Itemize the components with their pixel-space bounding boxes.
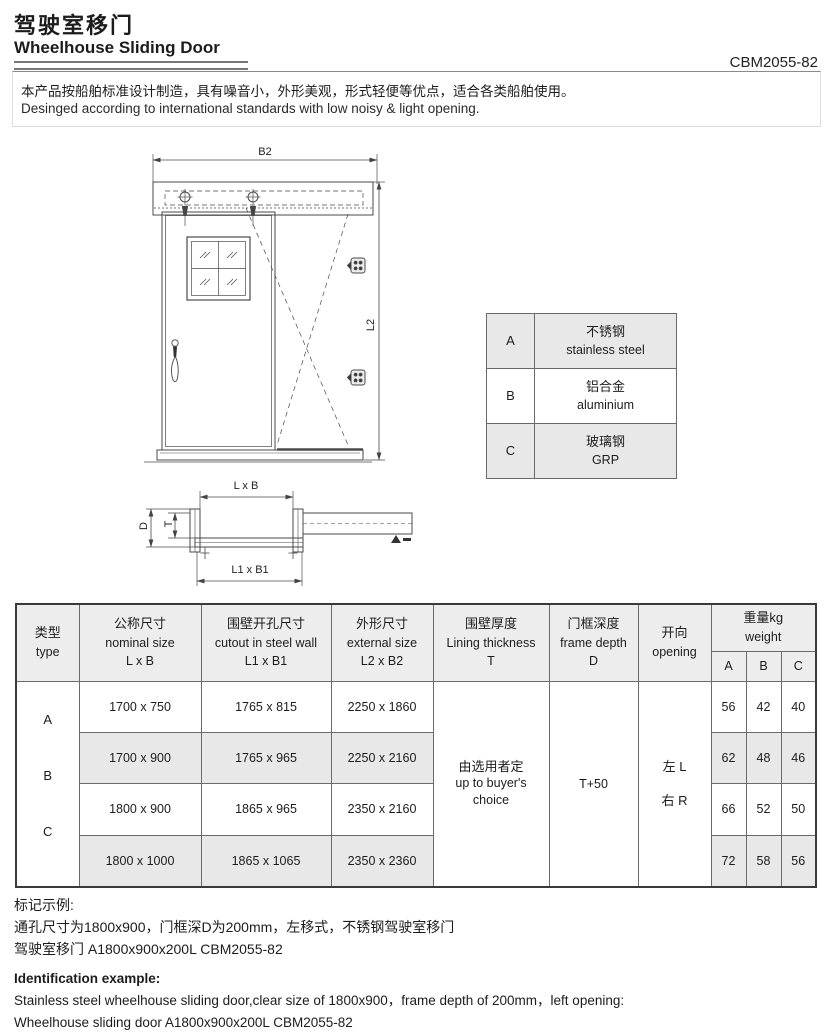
weight-c-cell: 46 <box>781 732 816 783</box>
technical-drawing: B2 L2 L x B D T L1 x B1 <box>120 140 440 605</box>
standard-code: CBM2055-82 <box>730 54 818 71</box>
weight-a-cell: 56 <box>711 681 746 732</box>
description-en: Desinged according to international stan… <box>21 101 480 116</box>
external-size-cell: 2350 x 2160 <box>331 784 433 835</box>
front-view <box>144 154 385 462</box>
opening-cell: 左 L 右 R <box>638 681 711 887</box>
material-key: C <box>487 424 535 479</box>
weight-a-cell: 62 <box>711 732 746 783</box>
weight-b-cell: 48 <box>746 732 781 783</box>
description-box: 本产品按船舶标准设计制造，具有噪音小，外形美观，形式轻便等优点，适合各类船舶使用… <box>12 71 821 127</box>
col-header-frame-depth: 门框深度 frame depth D <box>549 604 638 681</box>
material-row: A 不锈钢 stainless steel <box>487 314 677 369</box>
material-table: A 不锈钢 stainless steel B 铝合金 aluminium C … <box>486 313 677 479</box>
weight-c-cell: 40 <box>781 681 816 732</box>
external-size-cell: 2350 x 2360 <box>331 835 433 886</box>
lining-thickness-cell: 由选用者定 up to buyer's choice <box>433 681 549 887</box>
cutout-size-cell: 1865 x 1065 <box>201 835 331 886</box>
weight-subcol-a: A <box>711 651 746 681</box>
material-name-en: GRP <box>535 451 676 469</box>
description-zh: 本产品按船舶标准设计制造，具有噪音小，外形美观，形式轻便等优点，适合各类船舶使用… <box>21 80 575 100</box>
col-header-nominal: 公称尺寸 nominal size L x B <box>79 604 201 681</box>
external-size-cell: 2250 x 1860 <box>331 681 433 732</box>
col-header-external: 外形尺寸 external size L2 x B2 <box>331 604 433 681</box>
dim-label-lxb: L x B <box>234 480 259 492</box>
bottom-sill <box>144 450 372 463</box>
dim-label-b2: B2 <box>258 146 271 158</box>
weight-c-cell: 56 <box>781 835 816 886</box>
material-name-en: aluminium <box>535 396 676 414</box>
dimension-lxb <box>200 491 293 509</box>
clamp-icon <box>348 258 366 273</box>
frame-jambs <box>190 509 303 552</box>
col-header-weight: 重量kg weight <box>711 604 816 651</box>
door-leaf-section <box>303 513 412 543</box>
notes-en-title: Identification example: <box>14 968 624 990</box>
notes-zh-title: 标记示例: <box>14 894 624 916</box>
notes-zh-line1: 通孔尺寸为1800x900，门框深D为200mm，左移式，不锈钢驾驶室移门 <box>14 916 624 938</box>
weight-subcol-c: C <box>781 651 816 681</box>
notes-zh-line2: 驾驶室移门 A1800x900x200L CBM2055-82 <box>14 938 624 960</box>
spec-table: 类型 type 公称尺寸 nominal size L x B 围壁开孔尺寸 c… <box>15 603 817 888</box>
type-column: A B C <box>16 681 79 887</box>
cutout-size-cell: 1765 x 815 <box>201 681 331 732</box>
nominal-size-cell: 1800 x 1000 <box>79 835 201 886</box>
cutout-size-cell: 1765 x 965 <box>201 732 331 783</box>
type-letter: A <box>17 712 79 727</box>
notes-en-line2: Wheelhouse sliding door A1800x900x200L C… <box>14 1012 624 1034</box>
dim-label-t: T <box>163 520 175 527</box>
material-name: 不锈钢 stainless steel <box>535 314 677 369</box>
weight-a-cell: 66 <box>711 784 746 835</box>
weight-a-cell: 72 <box>711 835 746 886</box>
document-page: 驾驶室移门 Wheelhouse Sliding Door CBM2055-82… <box>0 0 830 1034</box>
nominal-size-cell: 1700 x 750 <box>79 681 201 732</box>
material-name-en: stainless steel <box>535 341 676 359</box>
weight-subcol-b: B <box>746 651 781 681</box>
weight-b-cell: 58 <box>746 835 781 886</box>
weight-c-cell: 50 <box>781 784 816 835</box>
weight-b-cell: 52 <box>746 784 781 835</box>
nominal-size-cell: 1700 x 900 <box>79 732 201 783</box>
door-window <box>187 237 250 300</box>
roller-icon <box>178 189 193 226</box>
material-row: C 玻璃钢 GRP <box>487 424 677 479</box>
clamp-icon <box>348 370 366 385</box>
frame-depth-cell: T+50 <box>549 681 638 887</box>
material-key: B <box>487 369 535 424</box>
identification-notes: 标记示例: 通孔尺寸为1800x900，门框深D为200mm，左移式，不锈钢驾驶… <box>14 894 624 1034</box>
weight-b-cell: 42 <box>746 681 781 732</box>
page-title-en: Wheelhouse Sliding Door <box>14 38 220 58</box>
external-size-cell: 2250 x 2160 <box>331 732 433 783</box>
col-header-lining: 围壁厚度 Lining thickness T <box>433 604 549 681</box>
type-letter: B <box>17 768 79 783</box>
col-header-type: 类型 type <box>16 604 79 681</box>
bottom-rail-section <box>195 538 303 559</box>
material-name-zh: 铝合金 <box>535 378 676 397</box>
table-row: A B C 1700 x 750 1765 x 815 2250 x 1860 … <box>16 681 816 732</box>
col-header-cutout: 围壁开孔尺寸 cutout in steel wall L1 x B1 <box>201 604 331 681</box>
material-row: B 铝合金 aluminium <box>487 369 677 424</box>
type-letter: C <box>17 824 79 839</box>
cutout-size-cell: 1865 x 965 <box>201 784 331 835</box>
page-title-zh: 驾驶室移门 <box>14 8 134 40</box>
dim-label-l2: L2 <box>365 319 377 331</box>
material-key: A <box>487 314 535 369</box>
material-name-zh: 玻璃钢 <box>535 433 676 452</box>
handle-icon <box>171 340 178 382</box>
roller-icon <box>246 189 261 226</box>
dimension-b2 <box>153 154 377 184</box>
col-header-opening: 开向 opening <box>638 604 711 681</box>
section-view <box>146 491 412 586</box>
nominal-size-cell: 1800 x 900 <box>79 784 201 835</box>
notes-en-line1: Stainless steel wheelhouse sliding door,… <box>14 990 624 1012</box>
dim-label-l1xb1: L1 x B1 <box>231 564 268 576</box>
dim-label-d: D <box>138 522 150 530</box>
material-name-zh: 不锈钢 <box>535 323 676 342</box>
title-double-underline <box>14 61 248 70</box>
material-name: 玻璃钢 GRP <box>535 424 677 479</box>
material-name: 铝合金 aluminium <box>535 369 677 424</box>
opening-dashed-lines <box>246 208 348 445</box>
